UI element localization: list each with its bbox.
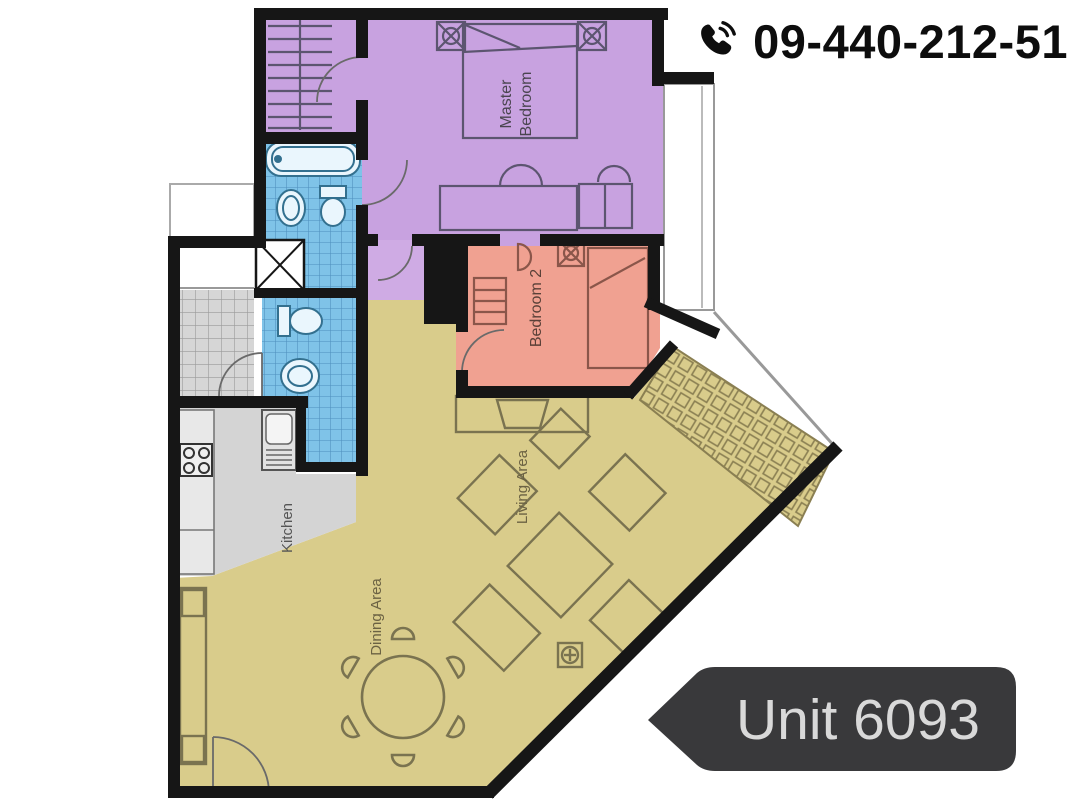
kitchen-counter [178, 410, 214, 574]
side-balcony [664, 84, 714, 310]
unit-tag: Unit 6093 [648, 667, 1016, 771]
phone-icon [693, 18, 741, 66]
toilet-1 [321, 198, 345, 226]
bathroom2-lower-area [306, 402, 356, 466]
toilet-2 [290, 308, 322, 334]
kitchen-label: Kitchen [279, 503, 296, 553]
entry-tiles [172, 290, 254, 398]
entry-landing [172, 246, 254, 290]
phone-number: 09-440-212-51 [753, 14, 1068, 69]
dining-area-label: Dining Area [368, 578, 385, 656]
ac-ledge [170, 184, 254, 238]
toilet-2-tank [278, 306, 290, 336]
phone-contact: 09-440-212-51 [693, 14, 1068, 69]
bedroom2-label: Bedroom 2 [528, 269, 545, 347]
living-area-label: Living Area [514, 449, 531, 524]
dining-table [362, 656, 444, 738]
floorplan-svg: Master Bedroom Bedroom 2 Living Area Din… [0, 0, 1080, 800]
toilet-1-tank [320, 186, 346, 198]
corridor-area [362, 240, 424, 300]
master-bedroom-label2: Bedroom [518, 72, 535, 137]
floor-plan-page: 09-440-212-51 [0, 0, 1080, 800]
master-bedroom-label: Master [498, 79, 515, 129]
unit-tag-label: Unit 6093 [736, 688, 980, 752]
bathroom1-lower-area [302, 240, 360, 292]
bedroom2-area [456, 246, 660, 396]
sink-2 [281, 359, 319, 393]
